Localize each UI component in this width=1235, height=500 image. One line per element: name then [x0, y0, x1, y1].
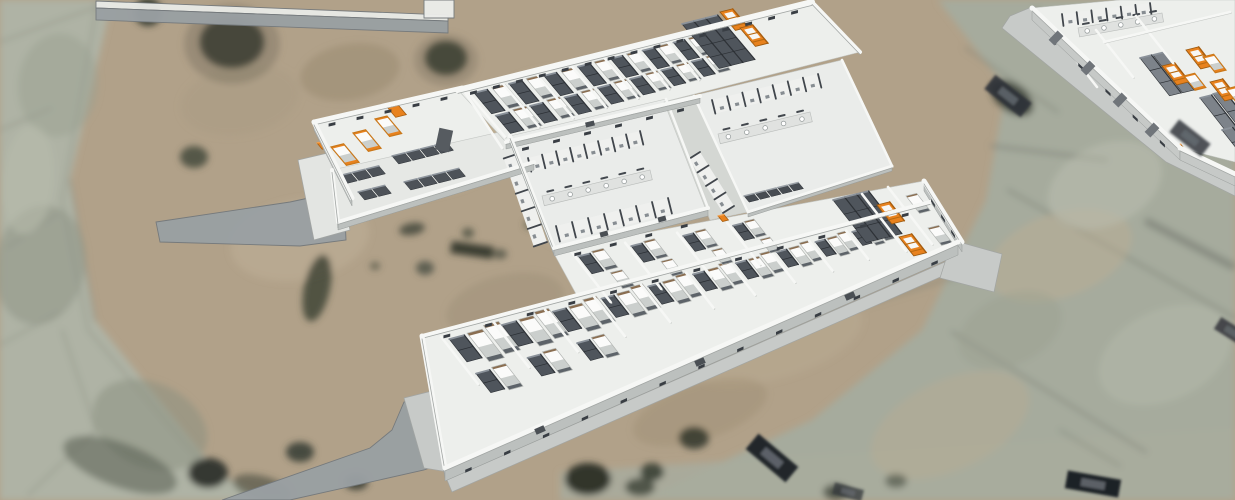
sink-bowl: [1102, 26, 1107, 31]
sink-bowl: [726, 134, 731, 139]
tree: [885, 474, 907, 488]
toilet-fixture: [1142, 11, 1146, 15]
mirror-strip: [1083, 23, 1089, 24]
tree: [188, 458, 228, 488]
sink-bowl: [800, 117, 805, 122]
sink-bowl: [1152, 17, 1157, 22]
mirror-strip: [601, 177, 607, 178]
mirror-strip: [637, 169, 643, 170]
sink-bowl: [604, 183, 609, 188]
toilet-fixture: [1098, 16, 1102, 20]
sink-bowl: [550, 196, 555, 201]
sink-bowl: [586, 188, 591, 193]
mirror-strip: [779, 115, 785, 116]
mirror-strip: [565, 186, 571, 187]
tree: [286, 442, 314, 462]
mirror-strip: [547, 190, 553, 191]
aerial-3d-model-view: [0, 0, 1235, 500]
mirror-strip: [619, 173, 625, 174]
toilet-fixture: [1127, 12, 1131, 16]
sink-bowl: [640, 175, 645, 180]
terrain-mottle: [414, 34, 478, 86]
scene-canvas: [0, 0, 1235, 500]
mirror-strip: [760, 119, 766, 120]
tree: [493, 249, 507, 259]
tree: [180, 146, 208, 168]
mirror-strip: [797, 111, 803, 112]
toilet-fixture: [1068, 20, 1072, 24]
walkway-north-landing: [424, 0, 454, 18]
tree: [416, 261, 434, 275]
mirror-strip: [1117, 17, 1123, 18]
tree: [625, 478, 655, 496]
sink-bowl: [1118, 23, 1123, 28]
sink-bowl: [763, 126, 768, 131]
mirror-strip: [1150, 11, 1156, 12]
sink-bowl: [744, 130, 749, 135]
toilet-fixture: [1083, 18, 1087, 22]
sink-bowl: [1085, 29, 1090, 34]
tree: [565, 463, 611, 495]
mirror-strip: [1100, 20, 1106, 21]
mirror-strip: [742, 124, 748, 125]
tree: [679, 427, 709, 449]
mirror-strip: [724, 128, 730, 129]
tree: [370, 262, 380, 270]
mirror-strip: [583, 182, 589, 183]
sink-bowl: [622, 179, 627, 184]
sink-bowl: [781, 121, 786, 126]
tree: [462, 228, 474, 238]
sink-bowl: [568, 192, 573, 197]
